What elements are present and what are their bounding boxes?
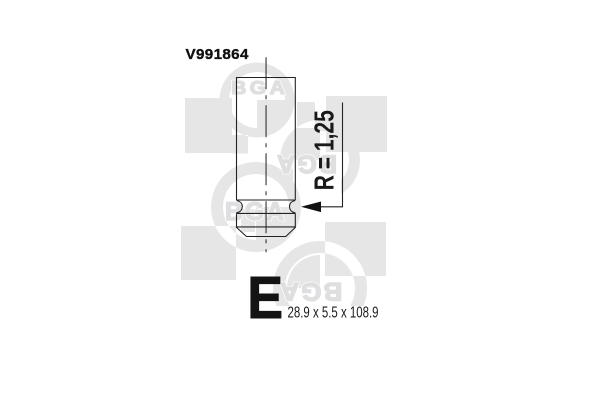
svg-text:BGA: BGA [225,198,286,226]
svg-text:V991864: V991864 [186,46,249,63]
svg-text:BGA: BGA [278,277,342,305]
svg-text:R = 1,25: R = 1,25 [309,110,340,190]
svg-text:BGA: BGA [231,78,288,98]
svg-text:E: E [247,265,283,331]
svg-text:28.9 x 5.5 x 108.9: 28.9 x 5.5 x 108.9 [288,305,379,322]
